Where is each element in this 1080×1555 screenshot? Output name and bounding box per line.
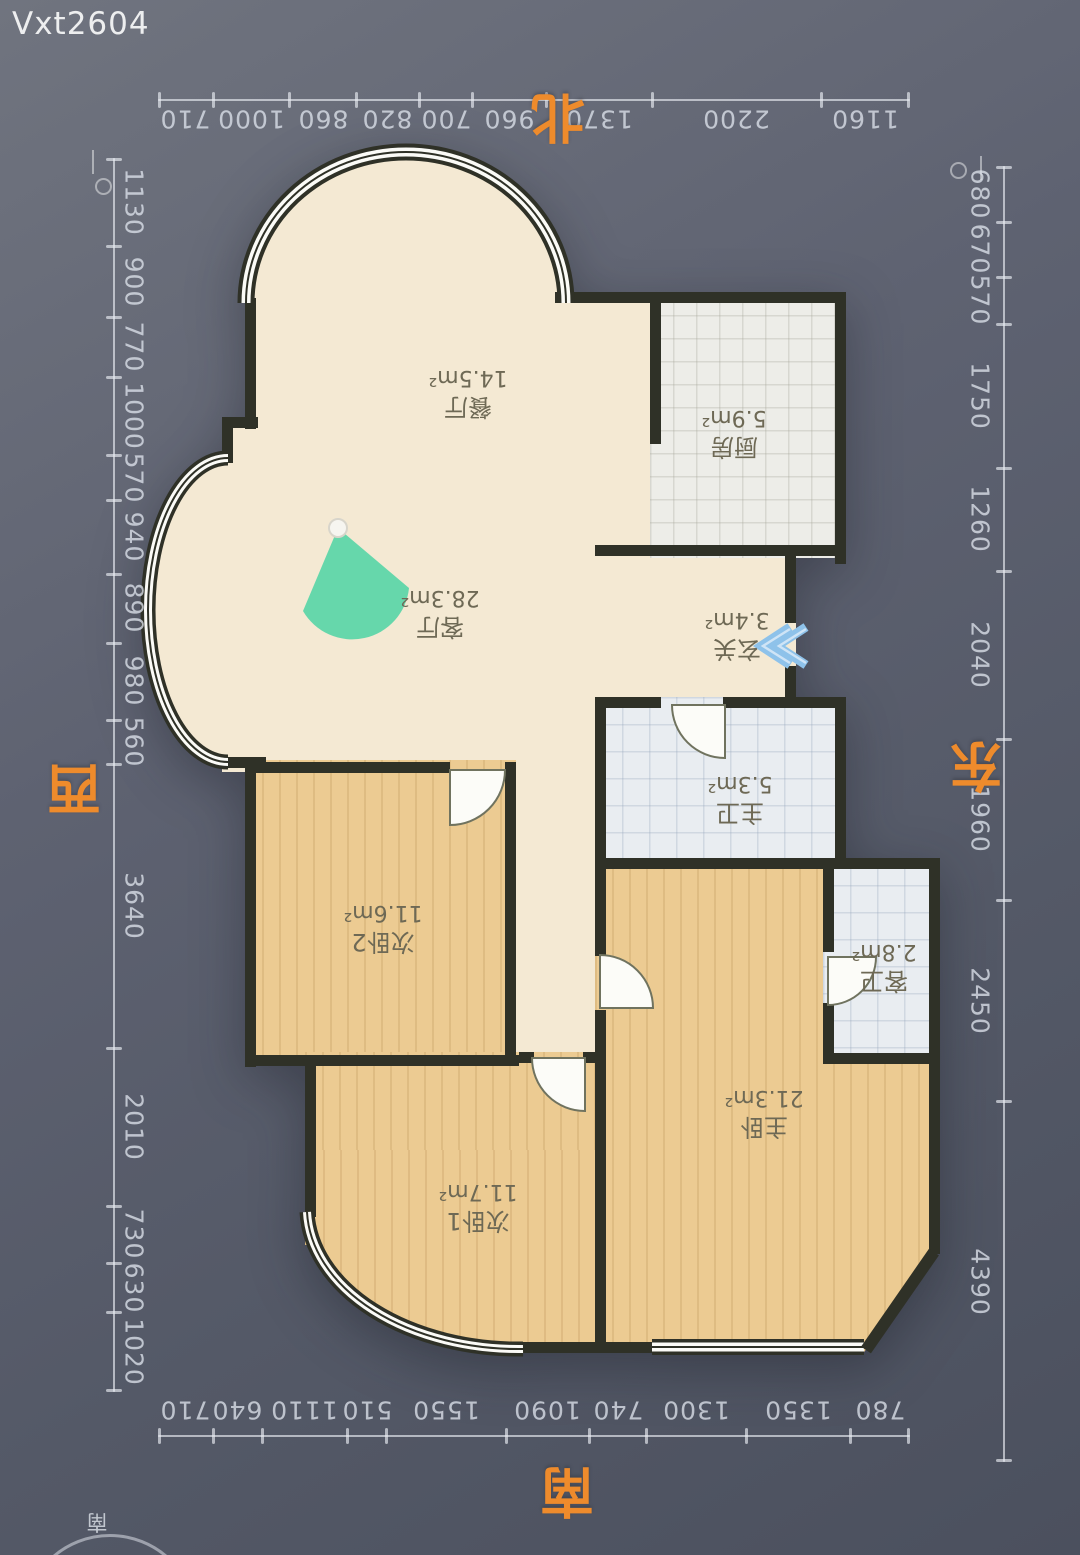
dimension-label: 710 [160,105,211,134]
room-area: 11.6m² [343,897,422,926]
room-area: 14.5m² [428,362,507,391]
mini-compass-south-label: 南 [87,1508,108,1538]
room-area: 28.3m² [400,582,479,611]
room-area: 21.3m² [724,1082,803,1111]
dimension-label: 2450 [966,967,995,1035]
dimension-label: 740 [592,1396,643,1425]
room-name: 餐厅 [428,391,507,422]
dimension-label: 710 [160,1396,211,1425]
room-area: 5.3m² [707,768,772,797]
dimension-label: 730 [120,1209,149,1260]
room-label-guest-bath: 客卫2.8m² [851,936,916,996]
watermark-text: Vxt2604 [12,6,150,42]
floor-plan-screenshot: Vxt2604 [0,0,1080,1555]
dimension-label: 560 [120,716,149,767]
dimension-label: 700 [420,105,471,134]
room-name: 客厅 [400,611,479,642]
dimension-label: 1130 [120,168,149,236]
dimension-label: 1350 [764,1396,832,1425]
room-label-master-bedroom: 主卧21.3m² [724,1082,803,1142]
dimension-label: 680 [966,169,995,220]
dimension-label: 3640 [120,872,149,940]
room-label-entry: 玄关3.4m² [704,604,769,664]
dimension-label: 860 [297,105,348,134]
dimension-label: 1020 [120,1318,149,1386]
dimension-label: 820 [362,105,413,134]
dimension-label: 570 [966,275,995,326]
dimension-label: 4390 [966,1248,995,1316]
dimension-label: 640 [212,1396,263,1425]
dimension-label: 670 [966,224,995,275]
dimension-label: 1550 [412,1396,480,1425]
dimension-label: 960 [484,105,535,134]
dimension-label: 1090 [514,1396,582,1425]
room-name: 客卫 [851,965,916,996]
room-name: 次卧2 [343,926,422,957]
room-label-master-bath: 主卫5.3m² [707,768,772,828]
dimension-label: 2200 [702,105,770,134]
floor-plan: 餐厅14.5m²厨房5.9m²客厅28.3m²玄关3.4m²主卫5.3m²次卧2… [0,0,1080,1555]
dimension-label: 630 [120,1262,149,1313]
room-area: 11.7m² [438,1176,517,1205]
room-area: 2.8m² [851,936,916,965]
dimension-label: 2040 [966,621,995,689]
room-name: 玄关 [704,633,769,664]
room-label-bedroom-2: 次卧211.6m² [343,897,422,957]
compass-south-label: 南 [540,1457,594,1536]
dimension-label: 2010 [120,1093,149,1161]
dimension-label: 900 [120,256,149,307]
dimension-label: 1260 [966,486,995,554]
dimension-label: 1300 [662,1396,730,1425]
room-area: 5.9m² [701,402,766,431]
compass-east-label: 东 [949,731,1003,810]
ruler-bottom: 71064011105101550109074013001350780 [158,1390,910,1440]
dimension-label: 940 [120,511,149,562]
ruler-left: 1130900770100057094089098056036402010730… [98,158,148,1392]
room-name: 次卧1 [438,1205,517,1236]
room-name: 主卫 [707,797,772,828]
room-label-bedroom-1: 次卧111.7m² [438,1176,517,1236]
dimension-label: 1750 [966,362,995,430]
dimension-label: 780 [855,1396,906,1425]
dimension-label: 1000 [120,382,149,450]
dimension-label: 570 [120,452,149,503]
room-name: 厨房 [701,431,766,462]
room-label-dining: 餐厅14.5m² [428,362,507,422]
dimension-label: 1110 [271,1396,339,1425]
dimension-label: 1160 [832,105,900,134]
room-area: 3.4m² [704,604,769,633]
compass-north-label: 北 [531,83,585,162]
room-name: 主卧 [724,1111,803,1142]
dimension-label: 770 [120,322,149,373]
dimension-label: 890 [120,583,149,634]
dimension-label: 980 [120,656,149,707]
ruler-right: 680670570175012602040196024504390 [956,166,1008,1462]
compass-west-label: 西 [47,754,101,833]
dimension-label: 1000 [217,105,285,134]
room-label-living: 客厅28.3m² [400,582,479,642]
room-label-kitchen: 厨房5.9m² [701,402,766,462]
dimension-label: 510 [341,1396,392,1425]
